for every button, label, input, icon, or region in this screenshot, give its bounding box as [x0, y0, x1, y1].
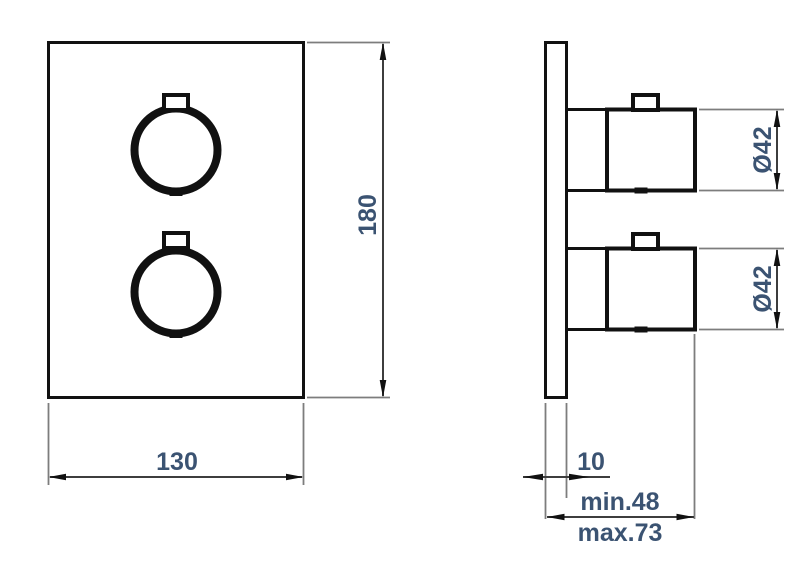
arrow-up-icon: [774, 249, 781, 267]
depth-min-label: min.48: [580, 488, 659, 516]
side-view: [546, 43, 696, 398]
arrow-left-icon: [523, 474, 543, 481]
arrow-left-icon: [49, 474, 67, 481]
arrow-down-icon: [774, 173, 781, 191]
arrow-right-icon: [677, 514, 695, 521]
dim-bottom-knob-diameter: Ø42: [699, 249, 784, 330]
dim-install-depth: min.48 max.73: [547, 334, 695, 547]
plate-thickness-label: 10: [577, 448, 605, 476]
arrow-up-icon: [774, 110, 781, 128]
arrow-down-icon: [774, 312, 781, 330]
arrow-left-icon: [547, 514, 565, 521]
dim-height: 180: [307, 43, 390, 398]
top-knob-profile-tick: [635, 188, 648, 194]
technical-drawing: 180 130 Ø42: [0, 0, 800, 567]
top-knob-tab-profile: [633, 95, 658, 110]
depth-max-label: max.73: [578, 519, 663, 547]
wall-plate-profile: [546, 43, 567, 398]
arrow-right-icon: [286, 474, 304, 481]
width-label: 130: [156, 448, 198, 476]
technical-drawing-canvas: 180 130 Ø42: [0, 0, 800, 567]
top-knob-indicator-notch: [164, 95, 188, 110]
bottom-knob-bottom-tick: [170, 332, 183, 338]
top-knob-bottom-tick: [170, 190, 183, 196]
top-knob-body-profile: [607, 110, 695, 191]
bottom-knob-diameter-label: Ø42: [749, 265, 777, 312]
arrow-down-icon: [380, 380, 387, 398]
bottom-knob-profile-tick: [635, 327, 648, 333]
dim-width: 130: [49, 403, 304, 485]
bottom-knob-indicator-notch: [164, 233, 188, 248]
height-label: 180: [354, 194, 382, 236]
arrow-up-icon: [380, 43, 387, 61]
dim-top-knob-diameter: Ø42: [699, 110, 784, 191]
bottom-knob-body-profile: [607, 249, 695, 330]
bottom-knob-tab-profile: [633, 234, 658, 249]
front-view: [49, 43, 304, 398]
top-knob-diameter-label: Ø42: [749, 126, 777, 173]
